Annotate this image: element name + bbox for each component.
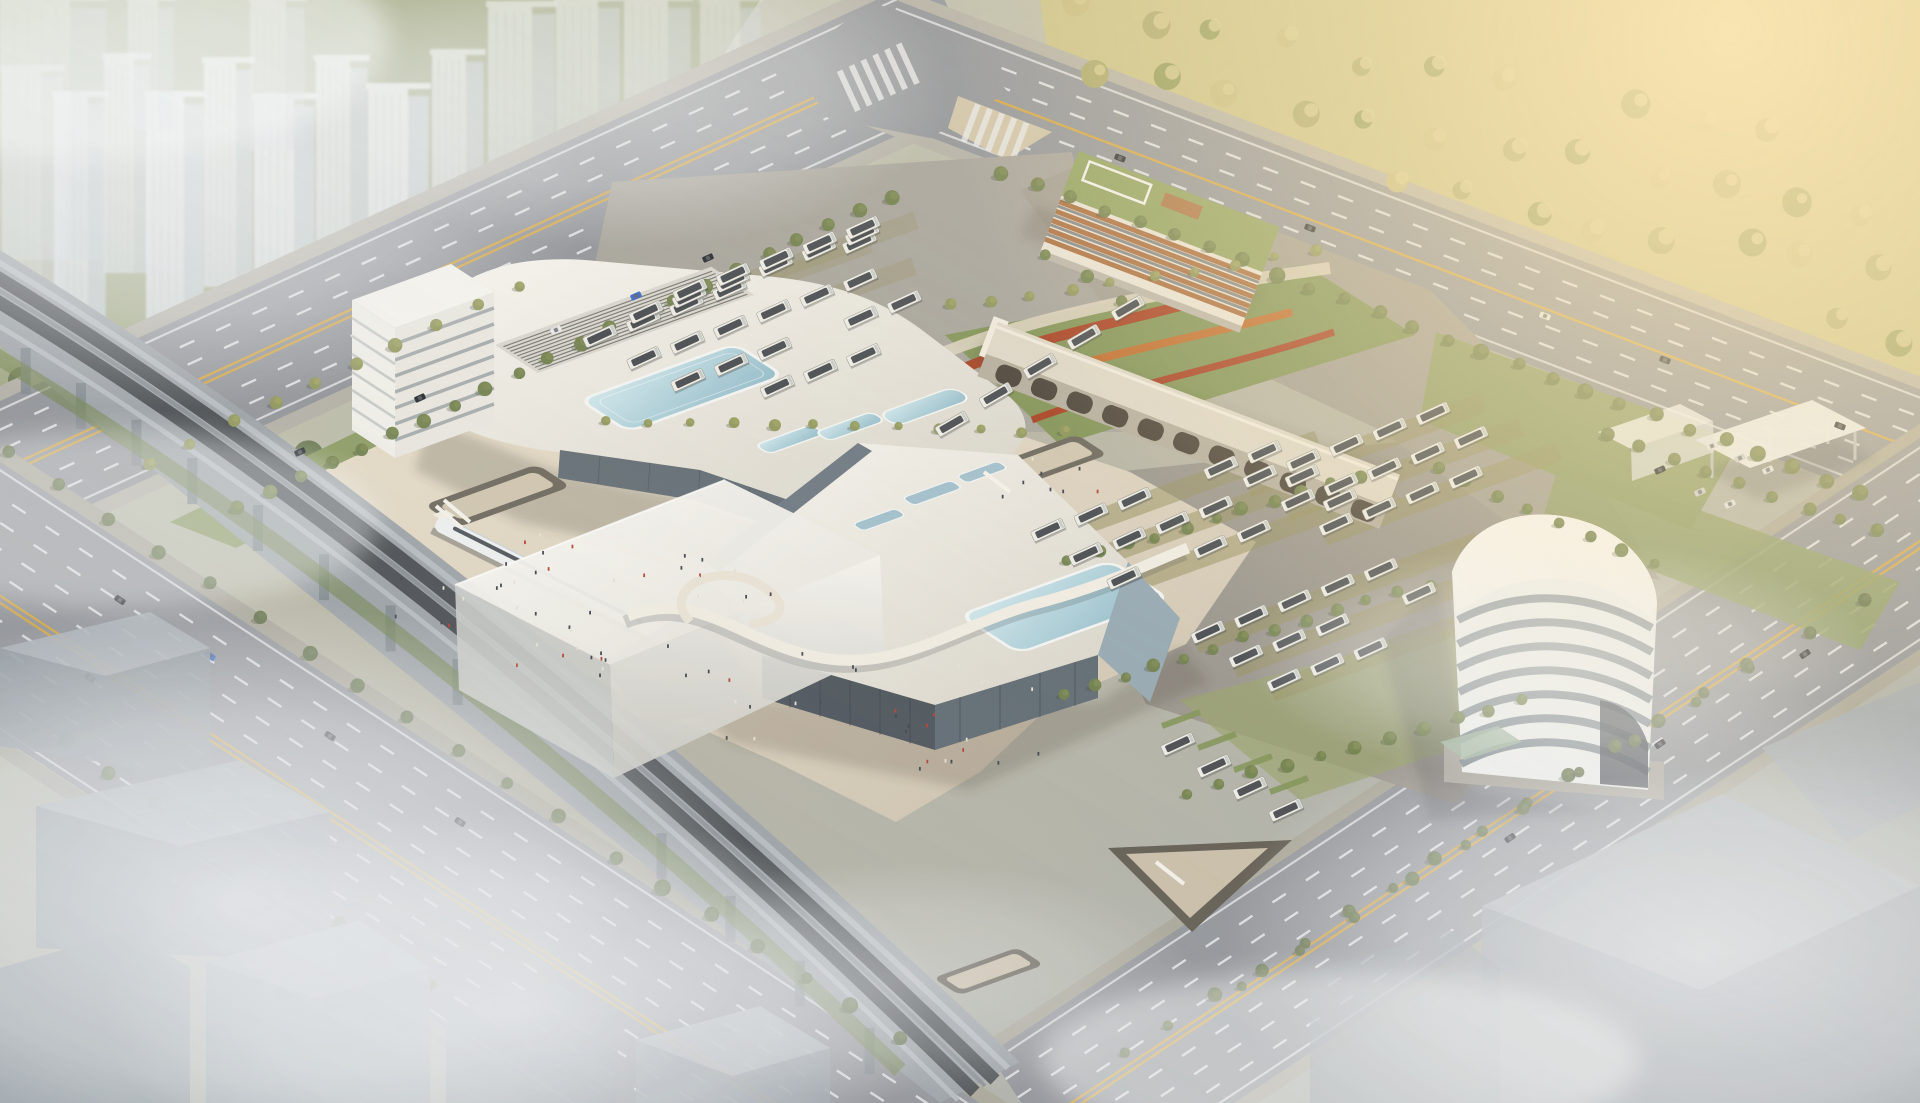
atmosphere-tint: [0, 0, 1920, 1103]
architectural-rendering: Aerial architectural rendering of an int…: [0, 0, 1920, 1103]
scene-svg: Aerial architectural rendering of an int…: [0, 0, 1920, 1103]
